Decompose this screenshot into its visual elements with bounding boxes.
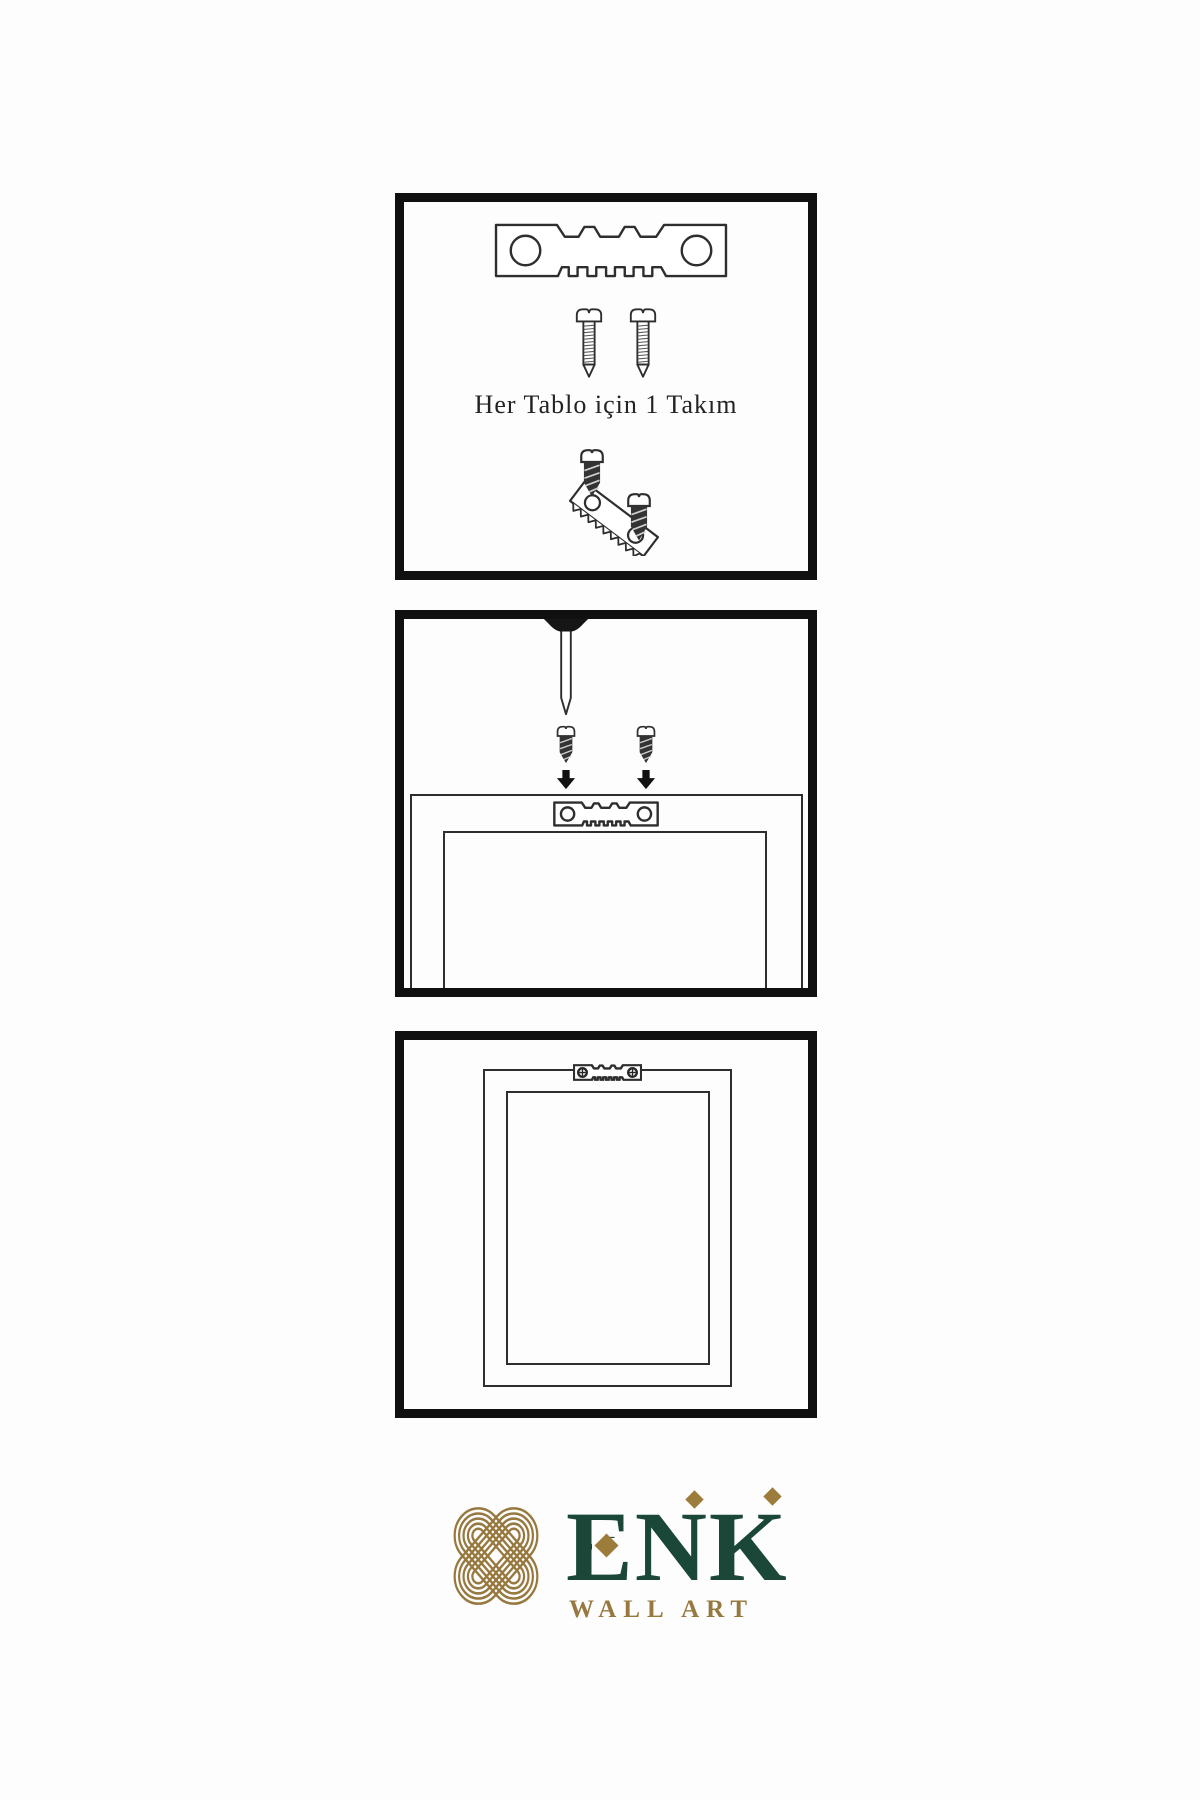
step-1-panel-hardware-kit: Her Tablo için 1 Takım	[395, 193, 817, 580]
frame-back-inner-edge	[443, 831, 767, 997]
brand-letter-n: N	[635, 1497, 709, 1597]
step-3-panel-hanging-result	[395, 1031, 817, 1418]
sawtooth-hanger-icon	[553, 801, 659, 827]
sawtooth-hanger-with-screws-icon	[573, 1064, 642, 1081]
instruction-sheet: Her Tablo için 1 Takım E N K	[0, 0, 1200, 1800]
brand-letter-k: K	[709, 1497, 789, 1597]
screw-icon	[554, 725, 578, 769]
sawtooth-hanger-icon	[492, 222, 730, 279]
down-arrow-icon	[555, 770, 577, 790]
screw-icon	[574, 305, 604, 381]
brand-wordmark: E N K	[566, 1497, 789, 1597]
down-arrow-icon	[635, 770, 657, 790]
brand-subtitle: WALL ART	[569, 1596, 754, 1624]
nail-icon	[542, 619, 590, 719]
kit-caption: Her Tablo için 1 Takım	[404, 390, 808, 420]
screw-icon	[628, 305, 658, 381]
step-2-panel-mounting	[395, 610, 817, 997]
screw-into-hanger-icon	[566, 446, 676, 556]
brand-letter-e: E	[566, 1497, 635, 1597]
frame-inner-edge	[506, 1091, 710, 1365]
screw-icon	[634, 725, 658, 769]
knot-logo-icon	[437, 1488, 555, 1624]
